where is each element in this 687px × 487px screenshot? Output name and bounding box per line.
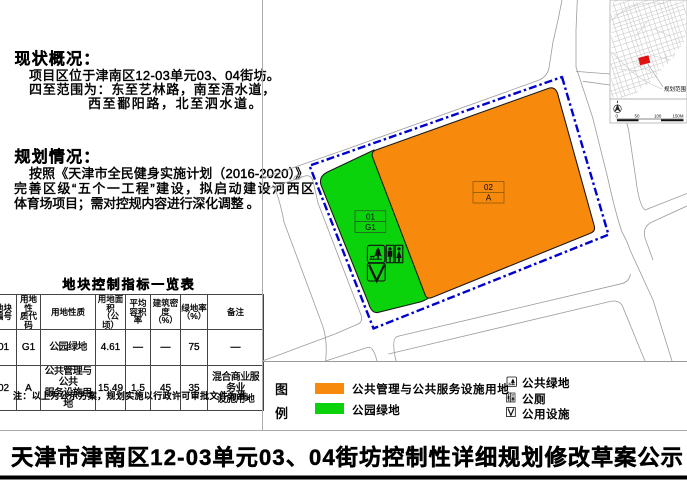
svg-text:150M: 150M [673, 113, 684, 118]
svg-text:规划范围: 规划范围 [664, 85, 687, 93]
svg-text:01: 01 [366, 212, 375, 221]
svg-text:100: 100 [654, 113, 662, 118]
svg-text:02: 02 [484, 183, 493, 192]
svg-text:G1: G1 [365, 223, 376, 232]
svg-text:A: A [486, 194, 492, 203]
svg-text:50: 50 [635, 113, 640, 118]
